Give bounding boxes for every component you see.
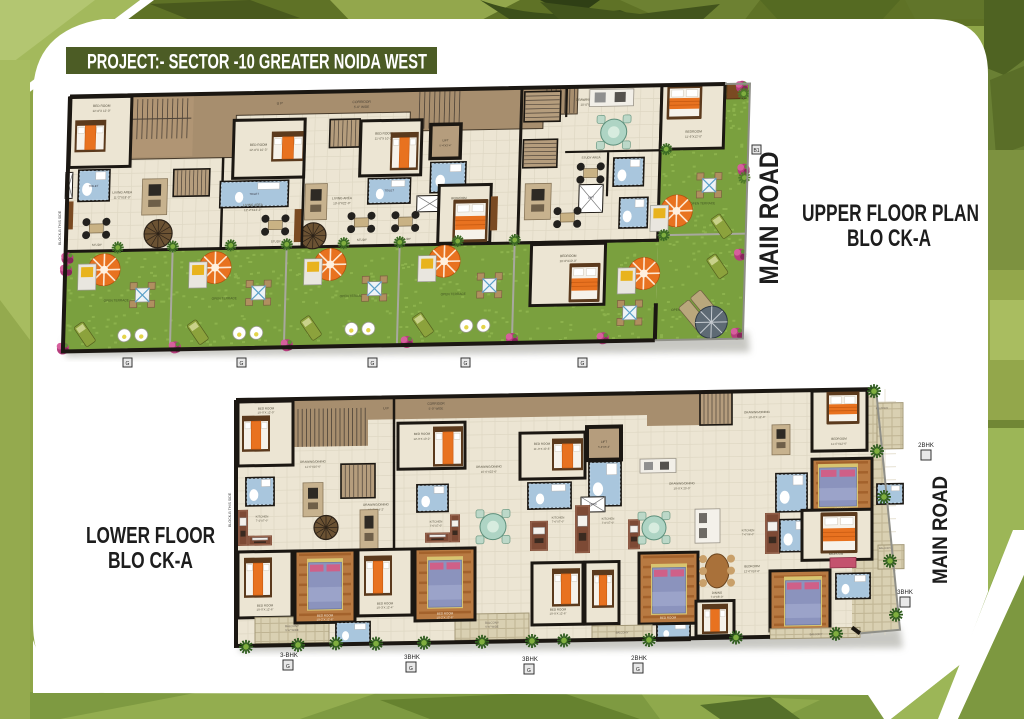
svg-text:G: G (286, 664, 290, 670)
svg-text:LIFT: LIFT (588, 195, 594, 199)
svg-text:BEDROOM: BEDROOM (744, 564, 760, 568)
svg-text:STUDY AREA: STUDY AREA (581, 155, 600, 159)
svg-text:U P: U P (277, 101, 284, 105)
svg-text:10'-0"X 12'-6": 10'-0"X 12'-6" (550, 611, 567, 615)
svg-text:10'-0"X10'-0": 10'-0"X10'-0" (559, 259, 576, 263)
svg-text:11'-6"X12'-0": 11'-6"X12'-0" (685, 134, 702, 138)
svg-text:12'-0"X10'-0": 12'-0"X10'-0" (744, 569, 760, 573)
svg-text:BED ROOM: BED ROOM (93, 104, 111, 108)
svg-text:12'-0"X 10'-3": 12'-0"X 10'-3" (249, 148, 267, 152)
svg-text:BLO CK-A: BLO CK-A (108, 547, 193, 573)
svg-text:LIVING AREA: LIVING AREA (332, 196, 353, 200)
svg-text:TOILET: TOILET (89, 184, 99, 188)
svg-text:B1: B1 (753, 148, 759, 154)
svg-text:10'-0"X22'-0": 10'-0"X22'-0" (333, 201, 350, 205)
svg-text:5'-6" WIDE: 5'-6" WIDE (485, 625, 498, 629)
svg-text:7'-0"X7'-0": 7'-0"X7'-0" (602, 521, 615, 525)
svg-text:UPPER FLOOR PLAN: UPPER FLOOR PLAN (802, 200, 979, 227)
svg-text:LIVING AREA: LIVING AREA (243, 203, 264, 207)
svg-text:10'-0"X22'-0": 10'-0"X22'-0" (481, 470, 497, 474)
svg-text:CORRIDOR: CORRIDOR (427, 401, 445, 405)
svg-text:10'-0"X 20'-0": 10'-0"X 20'-0" (674, 486, 691, 490)
svg-text:5'-6" WIDE: 5'-6" WIDE (285, 628, 298, 632)
svg-text:KITCHEN: KITCHEN (430, 519, 443, 523)
svg-text:BED ROOM: BED ROOM (375, 131, 393, 135)
svg-text:10'-0"X 12'-0": 10'-0"X 12'-0" (749, 415, 766, 419)
svg-text:3BHK: 3BHK (897, 590, 913, 596)
svg-text:11'-2"X18'-0": 11'-2"X18'-0" (114, 195, 131, 199)
svg-text:U P: U P (383, 406, 389, 410)
svg-text:STUDY: STUDY (357, 238, 367, 242)
svg-text:BED ROOM: BED ROOM (534, 442, 551, 446)
svg-text:10'-2"X 12'-6": 10'-2"X 12'-6" (437, 615, 454, 619)
svg-text:G: G (409, 666, 413, 672)
svg-text:LOWER FLOOR: LOWER FLOOR (86, 522, 215, 548)
svg-text:7'-0"X7'-0": 7'-0"X7'-0" (552, 519, 565, 523)
svg-text:G: G (464, 361, 468, 367)
svg-text:OPEN TERRACE: OPEN TERRACE (690, 201, 715, 205)
svg-text:BALCONY: BALCONY (616, 630, 629, 634)
svg-text:OPEN TERRACE: OPEN TERRACE (340, 294, 365, 298)
svg-text:KITCHEN: KITCHEN (602, 517, 615, 521)
svg-text:7'-0"X8'-0": 7'-0"X8'-0" (710, 595, 723, 599)
svg-text:11'-6"X12'-0": 11'-6"X12'-0" (831, 442, 847, 446)
svg-text:5'-4"X3'-4": 5'-4"X3'-4" (439, 143, 451, 147)
svg-text:DRAWING/DINING: DRAWING/DINING (363, 502, 389, 506)
svg-text:G: G (371, 361, 375, 367)
svg-text:5'-0" WIDE: 5'-0" WIDE (429, 406, 444, 410)
svg-text:10'-0"X 12'-0": 10'-0"X 12'-0" (258, 410, 275, 414)
svg-text:10'-3"X 12'-4": 10'-3"X 12'-4" (377, 605, 394, 609)
svg-text:TOILET: TOILET (384, 188, 394, 192)
svg-text:5'-0" WIDE: 5'-0" WIDE (354, 105, 370, 109)
svg-text:2BHK: 2BHK (918, 443, 934, 449)
svg-text:BALCONY: BALCONY (485, 621, 499, 625)
svg-text:G: G (240, 361, 244, 367)
svg-text:11'-6"X16'-0": 11'-6"X16'-0" (305, 465, 321, 469)
svg-text:3BHK: 3BHK (522, 657, 538, 663)
svg-text:BEDROOM: BEDROOM (829, 552, 844, 556)
svg-text:DRAWING/DINING: DRAWING/DINING (300, 459, 326, 463)
svg-text:11'-0"X 10'-3": 11'-0"X 10'-3" (534, 447, 551, 451)
svg-text:12'-0"X 10'-2": 12'-0"X 10'-2" (414, 437, 431, 441)
svg-text:OPEN TERRACE: OPEN TERRACE (104, 298, 129, 302)
svg-text:LIFT: LIFT (601, 440, 607, 444)
svg-text:STUDY: STUDY (271, 239, 281, 243)
svg-text:STUDY: STUDY (92, 243, 102, 247)
svg-text:7'-0"X6'-0": 7'-0"X6'-0" (742, 532, 755, 536)
svg-text:BEDROOM: BEDROOM (560, 254, 577, 258)
svg-text:2BHK: 2BHK (631, 656, 647, 662)
svg-text:7'-0"X7'-0": 7'-0"X7'-0" (430, 523, 443, 527)
svg-text:DRAWING/DINING: DRAWING/DINING (669, 481, 695, 485)
svg-text:BED ROOM: BED ROOM (660, 616, 677, 620)
svg-text:G: G (581, 361, 585, 367)
svg-text:PROJECT:- SECTOR -10 GREATER N: PROJECT:- SECTOR -10 GREATER NOIDA WEST (87, 51, 427, 74)
svg-text:LIVING AREA: LIVING AREA (112, 190, 133, 194)
svg-text:3BHK: 3BHK (404, 655, 420, 661)
svg-text:G: G (126, 361, 130, 367)
svg-text:BED ROOM: BED ROOM (414, 432, 431, 436)
svg-text:10'-2"X 12'-6": 10'-2"X 12'-6" (317, 617, 334, 621)
svg-text:BLOCK-B THIS SIDE: BLOCK-B THIS SIDE (58, 210, 62, 245)
svg-text:BED ROOM: BED ROOM (250, 143, 268, 147)
svg-text:BALCONY: BALCONY (810, 632, 823, 636)
svg-text:BEDROOM: BEDROOM (831, 437, 847, 441)
svg-text:OPEN TERRACE: OPEN TERRACE (441, 292, 466, 296)
svg-text:TOILET: TOILET (249, 192, 259, 196)
svg-text:BALCONY: BALCONY (285, 624, 299, 628)
svg-text:BLOCK-B THIS SIDE: BLOCK-B THIS SIDE (228, 492, 232, 527)
svg-text:G: G (527, 668, 531, 674)
svg-text:DRAWING/DINING: DRAWING/DINING (744, 410, 770, 414)
svg-text:12'-2"X14'-2": 12'-2"X14'-2" (244, 208, 261, 212)
svg-text:BLO CK-A: BLO CK-A (847, 225, 931, 252)
svg-text:11'-0"X 10'-2": 11'-0"X 10'-2" (375, 136, 393, 140)
svg-text:7'-2"X7'-0": 7'-2"X7'-0" (256, 518, 269, 522)
svg-text:OPEN: OPEN (589, 502, 596, 506)
svg-text:3-BHK: 3-BHK (280, 653, 298, 659)
svg-text:CORRIDOR: CORRIDOR (352, 100, 371, 104)
svg-text:BALCONY: BALCONY (879, 547, 891, 550)
svg-text:12'-0"X 12'-0": 12'-0"X 12'-0" (92, 109, 110, 113)
svg-text:KITCHEN: KITCHEN (256, 514, 269, 518)
svg-text:10'-0"X 12'-6": 10'-0"X 12'-6" (257, 607, 274, 611)
svg-text:MAIN ROAD: MAIN ROAD (929, 476, 952, 584)
svg-text:G: G (636, 667, 640, 673)
svg-text:LIFT: LIFT (442, 138, 448, 142)
svg-text:KITCHEN: KITCHEN (742, 528, 755, 532)
svg-text:OPEN TERRACE: OPEN TERRACE (212, 296, 237, 300)
svg-text:DRAWING/DINING: DRAWING/DINING (476, 464, 502, 468)
svg-text:BEDROOM: BEDROOM (685, 129, 702, 133)
svg-text:MAIN ROAD: MAIN ROAD (754, 152, 784, 285)
svg-text:KITCHEN: KITCHEN (552, 515, 565, 519)
svg-text:5'-4"X5'-4": 5'-4"X5'-4" (598, 445, 610, 449)
